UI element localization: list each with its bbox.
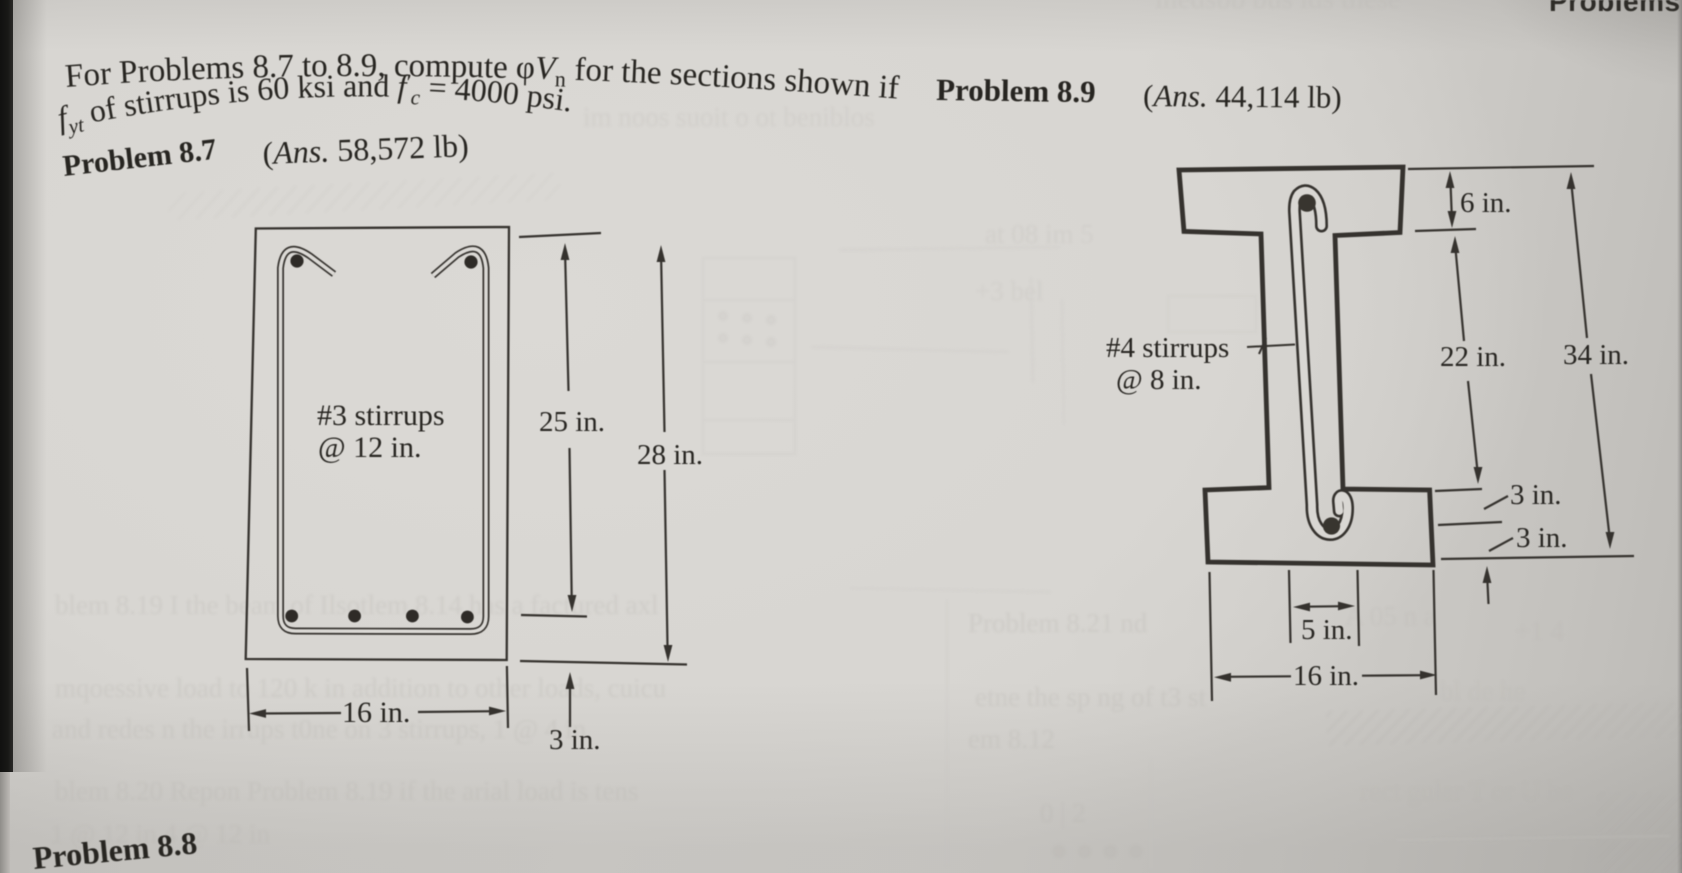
svg-text:#4 stirrups: #4 stirrups <box>1106 332 1229 364</box>
svg-text:and redes n the irrups t0ne: and redes n the irrups t0ne on 3 stirrup… <box>52 714 587 744</box>
svg-text:22 in.: 22 in. <box>1440 341 1506 373</box>
svg-text:3 in.: 3 in. <box>549 724 601 756</box>
svg-text:3 in.: 3 in. <box>1510 479 1562 511</box>
svg-text:@ 12 in.: @ 12 in. <box>318 431 421 464</box>
svg-text:34 in.: 34 in. <box>1563 339 1629 371</box>
svg-text:bl de he: bl de he <box>1440 676 1525 706</box>
svg-text:● ● ● ●: ● ● ● ● <box>1050 834 1145 867</box>
svg-text:blem 8.20 Repon Problem 8.1: blem 8.20 Repon Problem 8.19 if the aria… <box>55 776 638 806</box>
svg-text:16 in.: 16 in. <box>342 696 410 729</box>
svg-text:etne the sp ng of t3 st: etne the sp ng of t3 st <box>975 682 1206 712</box>
svg-text:em 8.12: em 8.12 <box>968 724 1055 754</box>
svg-text:+1 4: +1 4 <box>1515 616 1564 646</box>
svg-text:#3 stirrups: #3 stirrups <box>317 399 445 432</box>
svg-text:28 in.: 28 in. <box>637 439 703 471</box>
svg-text:16 in.: 16 in. <box>1293 660 1359 692</box>
svg-text:0 | 2: 0 | 2 <box>1040 798 1086 828</box>
svg-text:at 08 im 5: at 08 im 5 <box>985 219 1094 249</box>
svg-text:Problems: Problems <box>1549 0 1681 17</box>
svg-text:25 in.: 25 in. <box>539 406 605 438</box>
svg-text:6 in.: 6 in. <box>1460 187 1512 219</box>
svg-text:im noos suoit o ot beniblos: im noos suoit o ot beniblos <box>583 102 875 132</box>
svg-text:3 in.: 3 in. <box>1516 522 1568 554</box>
svg-text:5 in.: 5 in. <box>1301 614 1353 646</box>
svg-text:@ 8 in.: @ 8 in. <box>1116 364 1202 396</box>
svg-text:(Ans. 58,572 lb): (Ans. 58,572 lb) <box>262 127 469 171</box>
svg-text:ihedsbb bus ids tnese: ihedsbb bus ids tnese <box>1155 0 1401 15</box>
svg-text:rect gular T or U be: rect gular T or U be <box>1360 776 1573 806</box>
svg-text:(Ans. 44,114 lb): (Ans. 44,114 lb) <box>1143 78 1342 115</box>
svg-text:Problem 8.7: Problem 8.7 <box>61 133 218 183</box>
svg-text:+3 bel: +3 bel <box>975 276 1043 306</box>
svg-text:Problem 8.9: Problem 8.9 <box>936 72 1096 109</box>
svg-text:Problem 8.21 nd: Problem 8.21 nd <box>968 608 1148 638</box>
